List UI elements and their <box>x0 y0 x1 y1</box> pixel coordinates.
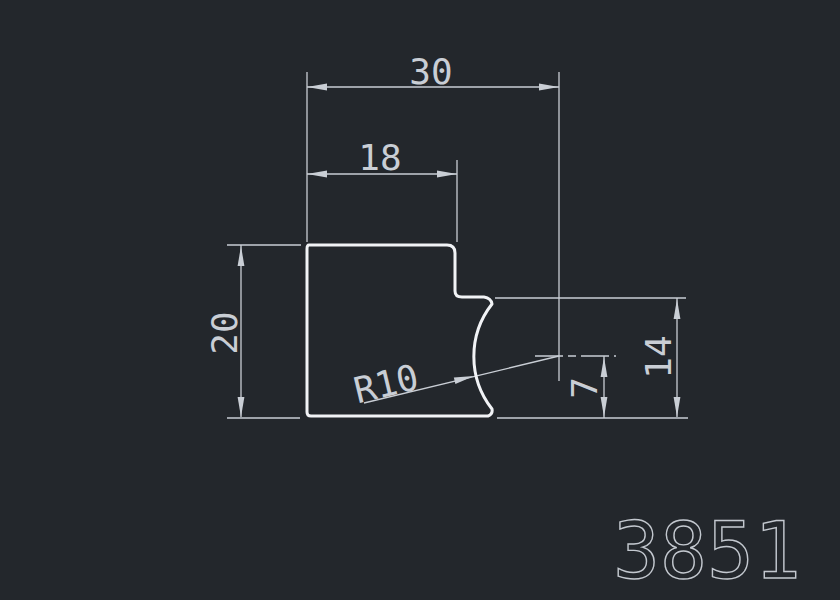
dim-18-label: 18 <box>358 137 401 178</box>
dim-14-label: 14 <box>638 335 679 378</box>
part-number-label: 3851 <box>613 506 801 596</box>
dim-7-label: 7 <box>564 377 605 399</box>
dim-20-label: 20 <box>204 311 245 354</box>
cad-viewport: 30 18 20 14 7 R10 3851 <box>0 0 840 600</box>
dim-30-label: 30 <box>409 51 452 92</box>
drawing-area: 30 18 20 14 7 R10 3851 <box>0 0 840 600</box>
